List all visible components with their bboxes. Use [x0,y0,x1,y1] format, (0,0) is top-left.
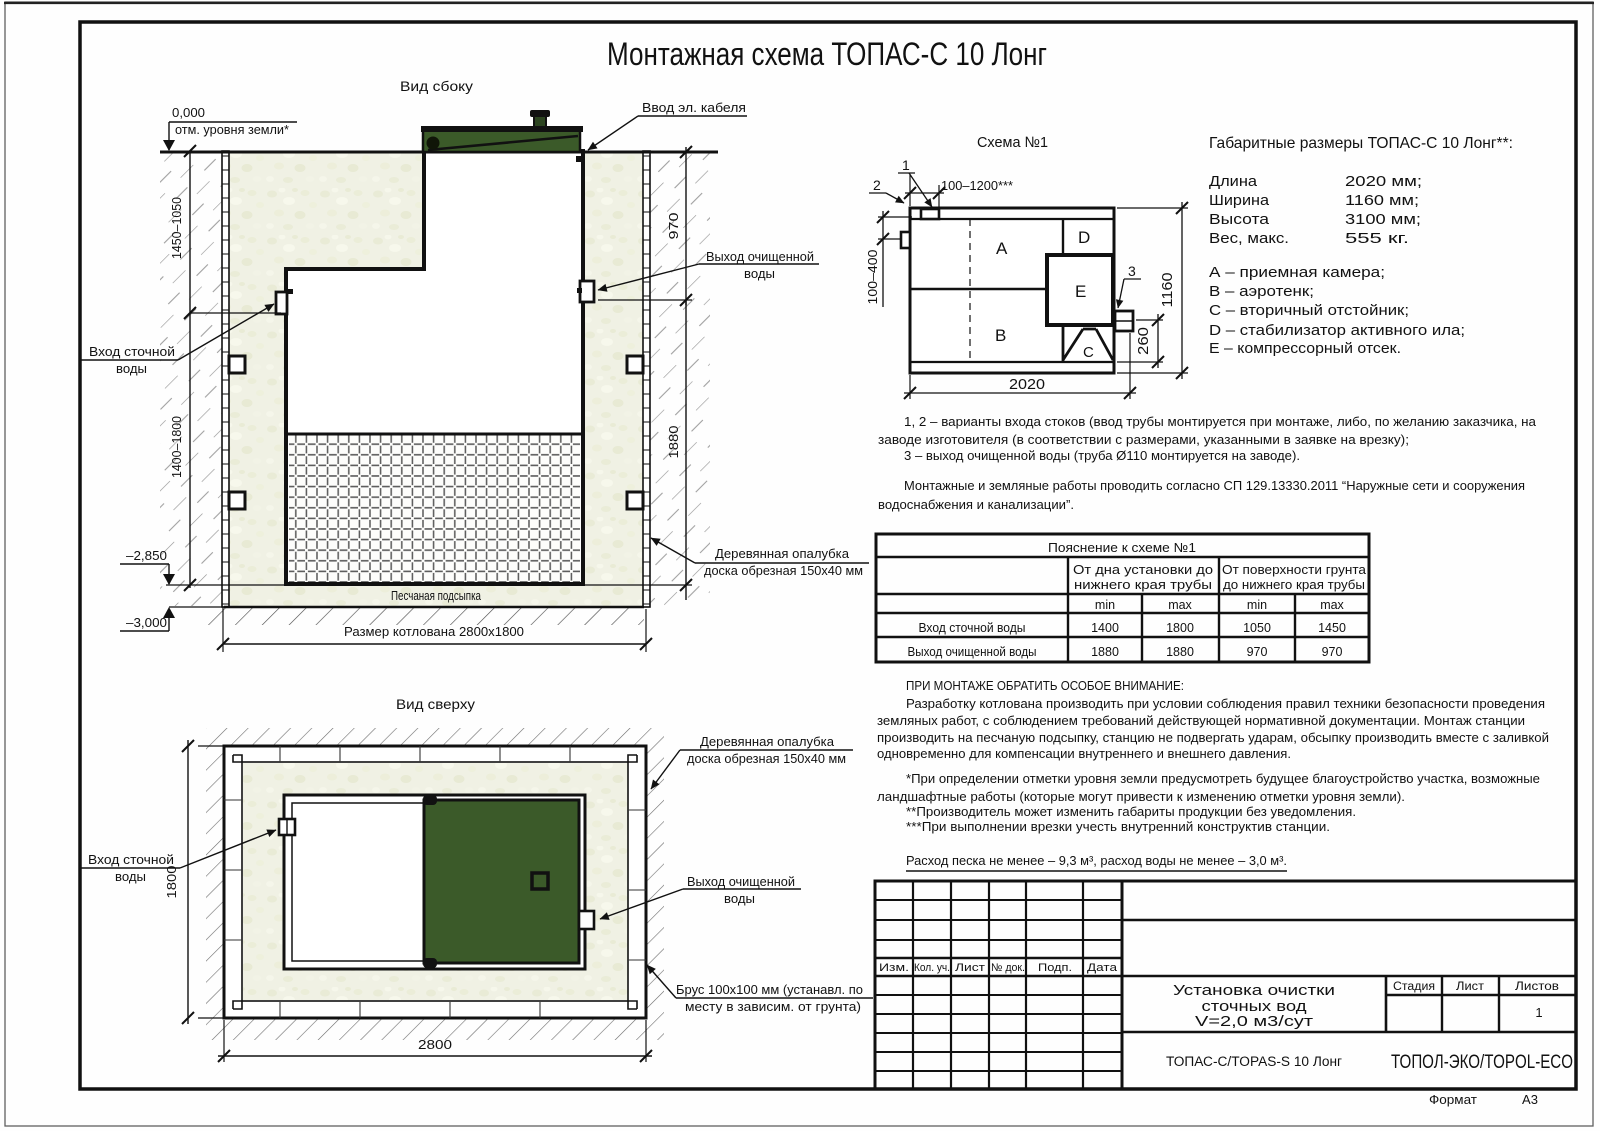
svg-text:Изм.: Изм. [879,962,909,974]
svg-text:производить на песчаную подсып: производить на песчаную подсыпку, станци… [877,730,1549,745]
svg-text:–3,000: –3,000 [126,615,167,630]
svg-text:отм. уровня земли*: отм. уровня земли* [175,123,289,137]
svg-text:Лист: Лист [1456,981,1485,993]
svg-text:1: 1 [902,157,910,173]
svg-text:Песчаная подсыпка: Песчаная подсыпка [391,589,481,603]
svg-text:Вход сточной: Вход сточной [89,345,175,359]
svg-text:D – стабилизатор активного ила: D – стабилизатор активного ила; [1209,322,1465,339]
svg-text:1880: 1880 [1166,645,1194,659]
svg-text:Длина: Длина [1209,173,1258,190]
svg-text:max: max [1320,598,1344,612]
svg-text:1880: 1880 [1091,645,1119,659]
svg-text:ландшафтные работы (которые мо: ландшафтные работы (которые могут привес… [877,789,1405,804]
svg-text:Кол. уч.: Кол. уч. [914,962,950,974]
svg-text:ПРИ МОНТАЖЕ ОБРАТИТЬ ОСОБОЕ ВН: ПРИ МОНТАЖЕ ОБРАТИТЬ ОСОБОЕ ВНИМАНИЕ: [906,678,1184,693]
svg-text:Установка очистки: Установка очистки [1173,982,1335,999]
svg-text:E: E [1075,282,1086,301]
svg-text:до нижнего края трубы: до нижнего края трубы [1223,578,1365,592]
svg-text:В – аэротенк;: В – аэротенк; [1209,283,1314,300]
svg-text:1800: 1800 [164,866,179,899]
svg-text:–2,850: –2,850 [126,548,167,563]
svg-text:Разработку котлована производи: Разработку котлована производить при усл… [906,696,1545,711]
svg-text:min: min [1095,598,1115,612]
svg-text:2020 мм;: 2020 мм; [1345,173,1422,190]
svg-text:доска обрезная 150х40 мм: доска обрезная 150х40 мм [687,752,846,766]
svg-text:Деревянная опалубка: Деревянная опалубка [700,735,834,749]
svg-text:Габаритные размеры ТОПАС-С 10: Габаритные размеры ТОПАС-С 10 Лонг**: [1209,135,1513,152]
svg-text:2800: 2800 [418,1037,452,1052]
svg-text:3: 3 [1128,263,1136,279]
svg-text:Ширина: Ширина [1209,192,1270,209]
svg-text:А – приемная камера;: А – приемная камера; [1209,264,1385,281]
svg-text:воды: воды [744,267,775,281]
svg-text:Монтажная схема ТОПАС-С 10 Лон: Монтажная схема ТОПАС-С 10 Лонг [607,36,1047,72]
svg-text:нижнего края трубы: нижнего края трубы [1074,578,1212,592]
svg-text:555 кг.: 555 кг. [1345,230,1409,247]
svg-text:1160: 1160 [1159,273,1176,308]
svg-text:1450: 1450 [1318,621,1346,635]
svg-text:№ док.: № док. [991,962,1025,974]
svg-text:Брус 100х100 мм (устанавл. по: Брус 100х100 мм (устанавл. по [676,983,863,997]
svg-text:B: B [995,326,1006,345]
svg-text:Выход очищенной: Выход очищенной [687,875,795,889]
svg-text:D: D [1078,228,1090,247]
svg-text:Монтажные и земляные работы пр: Монтажные и земляные работы проводить со… [904,478,1525,493]
svg-text:Схема №1: Схема №1 [977,134,1048,151]
svg-text:3 – выход очищенной воды (труб: 3 – выход очищенной воды (труба Ø110 мон… [904,448,1300,463]
svg-text:Выход очищенной воды: Выход очищенной воды [908,645,1037,659]
svg-text:***При выполнении врезки учест: ***При выполнении врезки учесть внутренн… [906,819,1330,834]
svg-text:ТОПОЛ-ЭКО/TOPOL-ECO: ТОПОЛ-ЭКО/TOPOL-ECO [1391,1052,1573,1073]
svg-text:1: 1 [1535,1005,1542,1020]
svg-text:Вид сбоку: Вид сбоку [400,78,473,94]
svg-text:Дата: Дата [1087,962,1118,974]
svg-text:Пояснение к схеме №1: Пояснение к схеме №1 [1048,540,1196,555]
svg-text:месту в зависим. от грунта): месту в зависим. от грунта) [685,1000,861,1014]
svg-text:970: 970 [1247,645,1268,659]
svg-text:1450–1050: 1450–1050 [169,197,184,259]
svg-text:С – вторичный отстойник;: С – вторичный отстойник; [1209,302,1409,319]
svg-text:0,000: 0,000 [172,105,205,120]
svg-text:Вход сточной: Вход сточной [88,853,174,867]
svg-text:**Производитель может изменить: **Производитель может изменить габариты … [906,804,1356,819]
svg-text:Высота: Высота [1209,211,1270,228]
svg-text:доска обрезная 150х40 мм: доска обрезная 150х40 мм [704,564,863,578]
svg-text:Лист: Лист [955,962,985,974]
svg-text:Выход очищенной: Выход очищенной [706,250,814,264]
svg-text:водоснабжения и канализации”.: водоснабжения и канализации”. [878,497,1074,512]
svg-text:Деревянная опалубка: Деревянная опалубка [715,547,849,561]
svg-text:1400: 1400 [1091,621,1119,635]
svg-text:От поверхности грунта: От поверхности грунта [1222,563,1366,577]
svg-text:V=2,0 м3/сут: V=2,0 м3/сут [1195,1013,1313,1030]
svg-text:C: C [1083,344,1094,361]
svg-text:1880: 1880 [666,426,681,459]
svg-text:воды: воды [724,892,755,906]
svg-text:1400–1800: 1400–1800 [169,416,184,478]
svg-text:Ввод эл. кабеля: Ввод эл. кабеля [642,101,746,115]
svg-text:Вес, макс.: Вес, макс. [1209,230,1289,247]
svg-text:Расход песка не менее – 9,3 м³: Расход песка не менее – 9,3 м³, расход в… [906,853,1287,868]
svg-text:A: A [996,239,1008,258]
svg-text:От дна установки до: От дна установки до [1073,563,1213,577]
svg-text:Е – компрессорный отсек.: Е – компрессорный отсек. [1209,340,1401,357]
svg-text:Вид сверху: Вид сверху [396,696,475,712]
svg-text:970: 970 [1322,645,1343,659]
svg-text:Подп.: Подп. [1038,962,1072,974]
svg-text:970: 970 [666,213,681,240]
svg-text:1160 мм;: 1160 мм; [1345,192,1419,209]
svg-text:1, 2 – варианты входа стоков: 1, 2 – варианты входа стоков (ввод трубы… [904,414,1537,429]
svg-text:одновременно для компенсации в: одновременно для компенсации внутреннего… [877,746,1291,761]
svg-text:2020: 2020 [1009,376,1045,393]
svg-text:Листов: Листов [1515,981,1559,993]
svg-text:100–1200***: 100–1200*** [941,178,1013,193]
svg-text:Формат: Формат [1429,1093,1477,1107]
svg-text:100–400: 100–400 [865,250,880,305]
svg-text:260: 260 [1135,327,1152,355]
svg-text:воды: воды [116,362,147,376]
svg-text:земляных работ, с соблюдением: земляных работ, с соблюдением требований… [877,713,1525,728]
svg-text:Стадия: Стадия [1393,981,1435,993]
svg-text:Вход сточной воды: Вход сточной воды [919,621,1026,635]
svg-text:2: 2 [873,177,881,193]
svg-text:А3: А3 [1522,1092,1538,1107]
svg-text:1050: 1050 [1243,621,1271,635]
svg-text:Размер котлована 2800х1800: Размер котлована 2800х1800 [344,624,524,639]
svg-text:min: min [1247,598,1267,612]
svg-text:заводе изготовителя (в соответ: заводе изготовителя (в соответствии с ра… [878,432,1409,447]
svg-text:*При определении отметки уровн: *При определении отметки уровня земли пр… [906,771,1540,786]
svg-text:воды: воды [115,870,146,884]
svg-text:ТОПАС-С/TOPAS-S 10 Лонг: ТОПАС-С/TOPAS-S 10 Лонг [1166,1054,1342,1069]
svg-text:3100 мм;: 3100 мм; [1345,211,1421,228]
svg-text:max: max [1168,598,1192,612]
svg-text:1800: 1800 [1166,621,1194,635]
